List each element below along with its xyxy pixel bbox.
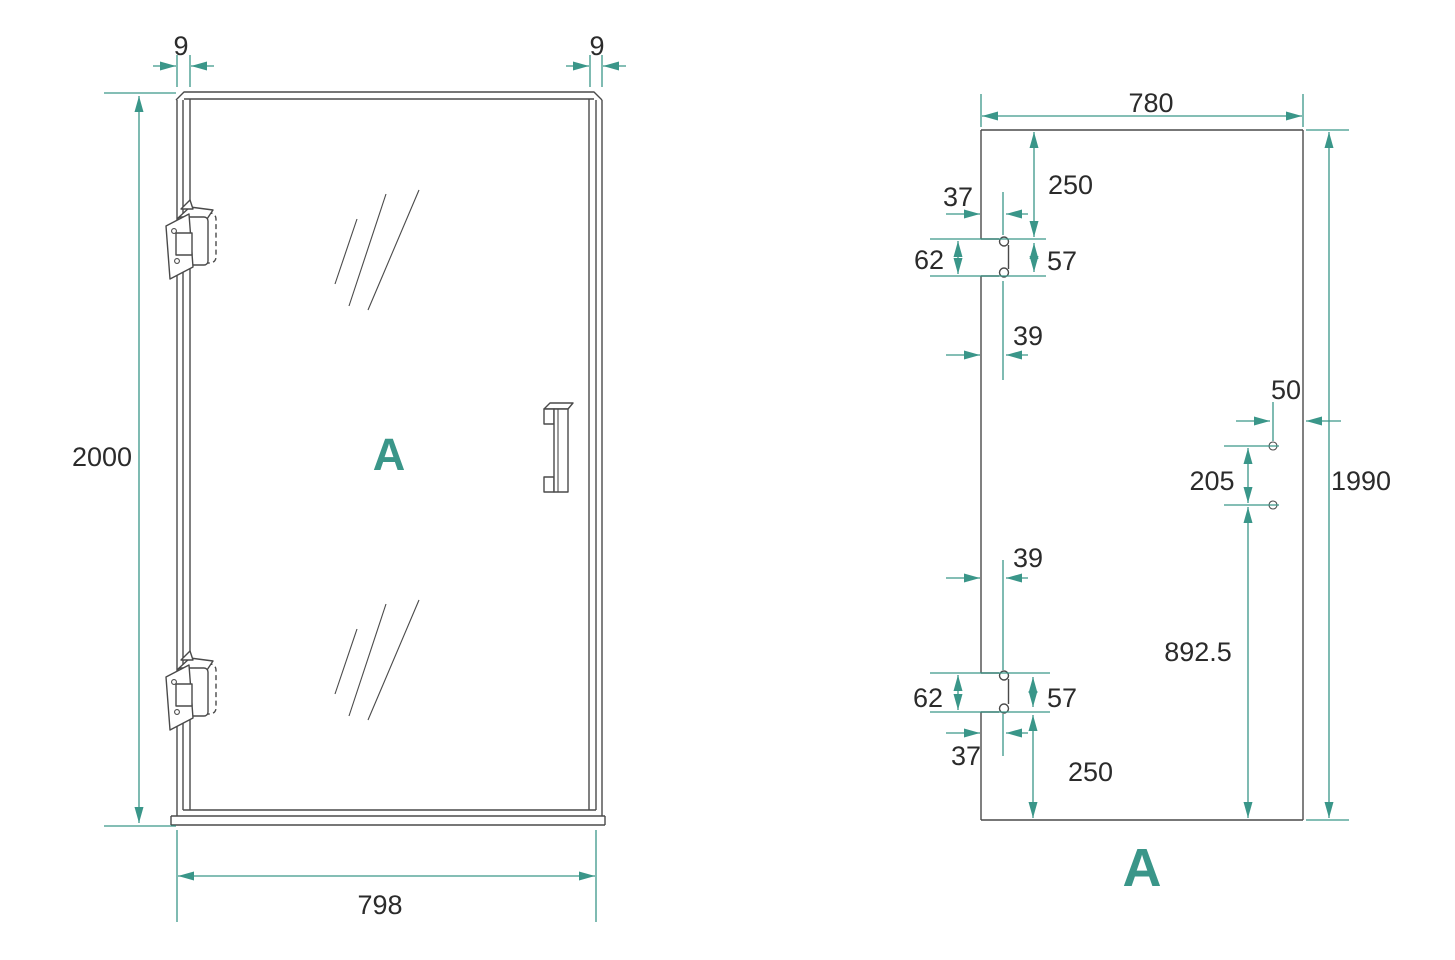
dim-text-bottom-edge-dist: 37 (951, 741, 981, 771)
glass-view-label: A (1123, 838, 1162, 898)
dim-text-handle-edge-dist: 50 (1271, 375, 1301, 405)
handle-top-face (544, 403, 573, 409)
dim-frame-left: 9 (153, 31, 214, 87)
dim-text-frame-left: 9 (173, 31, 188, 61)
dim-door-height: 2000 (72, 93, 176, 826)
door-handle (544, 403, 573, 492)
dim-text-glass-width: 780 (1128, 88, 1173, 118)
dim-text-frame-right: 9 (589, 31, 604, 61)
dim-text-door-width: 798 (357, 890, 402, 920)
dim-text-bottom-hole-pitch: 57 (1047, 683, 1077, 713)
handle-top-foot (544, 409, 554, 424)
glass-hatch-top (335, 190, 419, 310)
dim-top-cutout: 62 57 250 37 39 (914, 132, 1093, 380)
dim-text-glass-height: 1990 (1331, 466, 1391, 496)
front-view: 2000 9 9 798 A (72, 31, 626, 922)
glass-hatch-bottom (335, 600, 419, 720)
dim-text-top-edge-dist: 37 (943, 182, 973, 212)
top-hinge (166, 200, 216, 279)
dim-frame-right: 9 (566, 31, 626, 87)
dim-text-bottom-cut-height: 62 (913, 683, 943, 713)
dim-text-handle-hole-pitch: 205 (1189, 466, 1234, 496)
dim-glass-width: 780 (981, 88, 1303, 127)
top-hinge-cutout (981, 237, 1009, 277)
bottom-hinge (166, 651, 216, 730)
front-view-label: A (373, 429, 406, 480)
handle-bar (554, 409, 568, 492)
shower-door-technical-drawing: 2000 9 9 798 A (0, 0, 1455, 960)
dim-text-bottom-hole-inset: 39 (1013, 543, 1043, 573)
dim-text-top-offset: 250 (1048, 170, 1093, 200)
dim-door-width: 798 (177, 830, 596, 922)
glass-view: 780 1990 62 57 250 37 39 (913, 88, 1391, 898)
dim-handle-holes: 50 205 892.5 (1164, 375, 1341, 818)
dim-text-door-height: 2000 (72, 442, 132, 472)
dim-text-top-cut-height: 62 (914, 245, 944, 275)
dim-text-bottom-offset: 250 (1068, 757, 1113, 787)
handle-bottom-foot (544, 477, 554, 492)
dim-glass-height: 1990 (1306, 130, 1391, 820)
dim-text-handle-bottom-dist: 892.5 (1164, 637, 1232, 667)
dim-text-top-hole-inset: 39 (1013, 321, 1043, 351)
dim-bottom-cutout: 62 57 39 37 250 (913, 543, 1113, 818)
bottom-hinge-cutout (981, 671, 1009, 713)
drawing-svg: 2000 9 9 798 A (0, 0, 1455, 960)
dim-text-top-hole-pitch: 57 (1047, 246, 1077, 276)
